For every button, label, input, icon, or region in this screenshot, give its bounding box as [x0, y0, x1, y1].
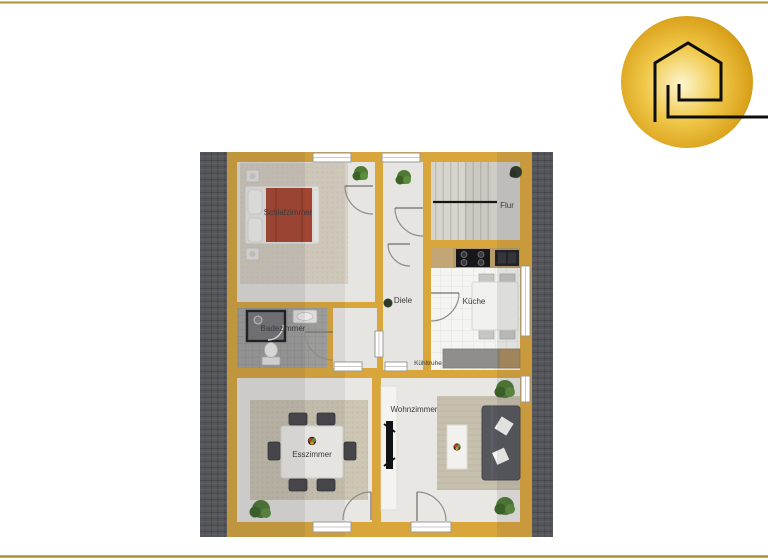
- room-diele: [383, 162, 423, 370]
- coffee-table: [447, 425, 467, 469]
- roof-hatch-right: [532, 152, 553, 537]
- stove: [456, 249, 490, 267]
- floorplan-canvas: Schlafzimmer Flur Diele Küche Badezimmer…: [0, 0, 768, 560]
- roof-hatch-left: [200, 152, 227, 537]
- label-kueche: Küche: [463, 297, 486, 306]
- page: Schlafzimmer Flur Diele Küche Badezimmer…: [0, 0, 768, 560]
- label-esszimmer: Esszimmer: [292, 450, 332, 459]
- label-flur: Flur: [500, 201, 514, 210]
- label-diele: Diele: [394, 296, 413, 305]
- logo: [621, 16, 768, 148]
- label-schlafzimmer: Schlafzimmer: [264, 208, 313, 217]
- floorplan: Schlafzimmer Flur Diele Küche Badezimmer…: [200, 152, 553, 537]
- plant: [384, 299, 393, 308]
- label-wohnzimmer: Wohnzimmer: [391, 405, 438, 414]
- label-badezimmer: Badezimmer: [261, 324, 306, 333]
- logo-circle: [621, 16, 753, 148]
- label-kuehltruhe: Kühltruhe: [414, 360, 442, 367]
